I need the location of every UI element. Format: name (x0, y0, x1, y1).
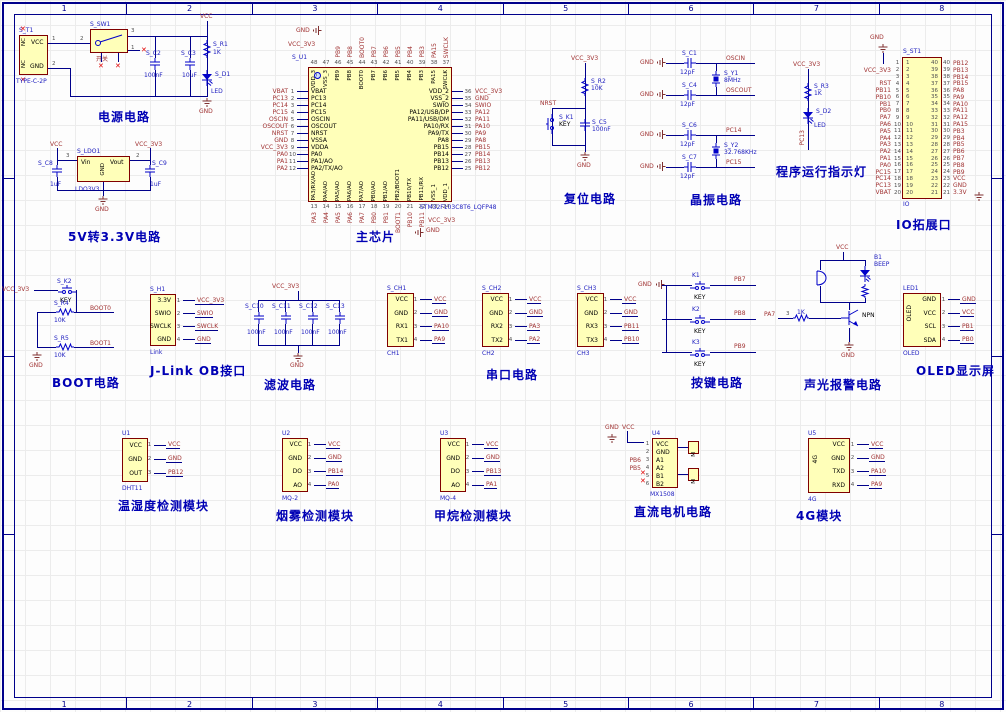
wire (183, 339, 195, 340)
net-label[interactable]: PA10 (869, 468, 886, 476)
wire (472, 444, 484, 445)
power-port-gnd[interactable]: GND (577, 162, 591, 169)
pin-number: 43 (368, 60, 380, 66)
net-label[interactable]: GND (640, 91, 654, 98)
wire (678, 474, 688, 475)
pin-number: 20 (893, 190, 902, 196)
wire (420, 313, 432, 314)
net-label[interactable]: GND (166, 455, 182, 463)
net-label[interactable]: GND (527, 309, 543, 317)
pin-number: 17 (356, 204, 368, 210)
npn-transistor-icon[interactable] (841, 308, 861, 328)
section-title[interactable]: 5V转3.3V电路 (68, 228, 161, 245)
pin-number: 3 (288, 103, 297, 109)
pin-number: 23 (929, 176, 942, 182)
gnd-icon[interactable] (878, 44, 888, 53)
resistor-icon[interactable] (793, 314, 809, 322)
capacitor-icon[interactable] (580, 119, 590, 131)
wire (716, 159, 717, 167)
net-label[interactable]: PA6 (344, 212, 356, 244)
designator: S_Y1 (724, 70, 738, 77)
gnd-icon[interactable] (414, 228, 424, 237)
net-label[interactable]: PA10 (432, 323, 449, 331)
key-items: K1 KEY PB7 K2 KEY PB8 K3 KEY (662, 272, 782, 373)
net-label[interactable]: VCC (166, 441, 180, 449)
value: KEY (694, 361, 705, 368)
pin-name: DO (441, 468, 463, 475)
net-label[interactable]: PB0 (960, 336, 974, 344)
net-label[interactable]: VCC (622, 296, 636, 304)
power-port-vcc[interactable]: VCC (622, 424, 634, 431)
net-label[interactable]: SWCLK (195, 323, 218, 331)
net-label[interactable]: PB4 (404, 46, 416, 58)
capacitor[interactable]: S_C11 100nF (272, 300, 299, 345)
pin-number: 3 (131, 28, 135, 34)
net-label[interactable]: GND (622, 309, 638, 317)
pin-number: 27 (942, 149, 951, 155)
pin-number: 34 (942, 101, 951, 107)
key-circuit[interactable]: K3 KEY PB9 (662, 339, 782, 373)
net-label[interactable]: GND (960, 296, 976, 304)
net-label[interactable]: VCC (960, 309, 974, 317)
gnd-icon[interactable] (607, 434, 617, 443)
pin-number: 31 (463, 124, 473, 130)
gnd-icon[interactable] (656, 58, 666, 67)
wire (314, 444, 326, 445)
pin-number: 18 (902, 176, 915, 182)
pin-number: 18 (368, 204, 380, 210)
wire (452, 105, 463, 106)
net-label[interactable]: PA1 (484, 481, 497, 489)
net-label[interactable]: SWIO (473, 102, 491, 109)
net-label[interactable]: PA0 (326, 481, 339, 489)
net-label[interactable]: PB13 (473, 158, 490, 165)
net-label[interactable]: PB9 (332, 46, 344, 58)
wire (190, 70, 191, 96)
capacitor-icon[interactable] (684, 162, 696, 172)
value: 10K (54, 352, 66, 359)
wire (452, 140, 463, 141)
pin-number: 5 (893, 88, 902, 94)
capacitor[interactable]: S_C13 100nF (326, 300, 353, 345)
section-title[interactable]: 滤波电路 (264, 376, 316, 393)
net-label[interactable]: VCC (484, 441, 498, 449)
net-label[interactable]: PA10 (473, 123, 490, 130)
section-title[interactable]: IO拓展口 (896, 216, 952, 233)
key-button-icon[interactable] (58, 285, 76, 295)
designator: K3 (692, 339, 700, 346)
section-title[interactable]: 程序运行指示灯 (776, 163, 867, 180)
gnd-icon[interactable] (293, 353, 303, 362)
net-label[interactable]: VCC_3V3 (288, 41, 315, 48)
section-title[interactable]: 4G模块 (796, 507, 842, 524)
net-label[interactable]: PB5 (392, 46, 404, 58)
power-port-gnd[interactable]: GND (638, 281, 652, 288)
wire (74, 312, 114, 313)
net-label[interactable]: SWIO (195, 310, 213, 318)
power-port-vcc[interactable]: VCC (200, 13, 212, 20)
module-rows: VCC 1 VCC GND 2 GND DO 3 PB13 AO 4 PA1 (441, 438, 501, 492)
wire (472, 485, 484, 486)
mcu-top-numbers: 484746454443424140393837 (308, 60, 452, 66)
net-label[interactable]: GND (640, 163, 654, 170)
designator: S_C10 (245, 303, 264, 310)
power-port-gnd[interactable]: GND (95, 206, 109, 213)
pin-name: RXD (810, 482, 848, 489)
wire (857, 458, 869, 459)
power-port-gnd[interactable]: GND (870, 34, 884, 41)
power-port-vcc[interactable]: VCC (836, 244, 848, 251)
net-label[interactable]: PC14 (726, 127, 741, 134)
net-label[interactable]: GND (254, 137, 288, 144)
pin-name: Vout (110, 159, 123, 166)
capacitor[interactable]: S_C12 100nF (299, 300, 326, 345)
pin-number: 4 (902, 81, 915, 87)
pin-number: 24 (929, 169, 942, 175)
pin-number: 33 (942, 108, 951, 114)
resistor-icon[interactable] (581, 78, 589, 94)
net-label[interactable]: VCC (432, 296, 446, 304)
key-button-icon[interactable] (546, 114, 558, 134)
net-label[interactable]: PC13 (254, 95, 288, 102)
pin-number: 5 (902, 88, 915, 94)
pin-name: PA3/RX/AO (308, 160, 320, 201)
power-port-gnd[interactable]: GND (199, 108, 213, 115)
power-port-gnd[interactable]: GND (841, 352, 855, 359)
net-label[interactable]: PA9 (869, 481, 882, 489)
net-label[interactable]: PB14 (326, 468, 343, 476)
net-label[interactable]: OSCOUT (726, 87, 752, 94)
pin-name: PA9/TX (428, 130, 449, 137)
capacitor-icon[interactable] (684, 90, 696, 100)
pin-number: 20 (902, 190, 915, 196)
gnd-icon[interactable] (656, 162, 666, 171)
pin-number: 8 (288, 138, 297, 144)
net-label[interactable]: PA7 (764, 311, 775, 318)
wire (297, 168, 308, 169)
net-label[interactable]: VCC (869, 441, 883, 449)
wire (696, 135, 755, 136)
pin-number: 28 (463, 145, 473, 151)
pin-name: TX3 (578, 337, 601, 344)
gnd-icon[interactable] (32, 352, 42, 361)
net-label[interactable]: PB7 (368, 46, 380, 58)
net-label[interactable]: GND (484, 454, 500, 462)
pin-number: 8 (893, 108, 902, 114)
pin-number: 2 (174, 311, 183, 317)
gnd-icon[interactable] (312, 26, 322, 35)
pin-number: 27 (463, 152, 473, 158)
pin-name: PB1/AO (380, 160, 392, 201)
net-label[interactable]: OSCIN (726, 55, 745, 62)
pin-number: 2 (463, 455, 472, 461)
capacitor-icon[interactable] (52, 165, 62, 177)
wire (585, 63, 586, 152)
section-title[interactable]: 直流电机电路 (634, 503, 712, 520)
gnd-icon[interactable] (580, 152, 590, 161)
value: 12pF (680, 141, 695, 148)
pin-name: GND (283, 455, 305, 462)
pin-number: 9 (288, 145, 297, 151)
capacitor-icon[interactable] (684, 58, 696, 68)
wire (610, 313, 622, 314)
led-icon[interactable] (802, 108, 814, 124)
buzzer-icon[interactable] (812, 270, 828, 286)
section-title[interactable]: 主芯片 (356, 228, 395, 245)
designator: S_C3 (181, 50, 196, 57)
net-label[interactable]: PA11 (473, 116, 490, 123)
section-title[interactable]: 甲烷检测模块 (434, 507, 512, 524)
pin-number: 3 (848, 469, 857, 475)
key-circuit[interactable]: K1 KEY PB7 (662, 272, 782, 306)
net-label[interactable]: VCC (527, 296, 541, 304)
pin-number: 25 (942, 162, 951, 168)
section-title[interactable]: 复位电路 (564, 190, 616, 207)
net-label[interactable]: GND (326, 454, 342, 462)
net-label[interactable]: PC13 (799, 130, 806, 145)
section-title[interactable]: J-Link OB接口 (150, 362, 246, 379)
designator: K2 (692, 306, 700, 313)
wire (452, 154, 463, 155)
section-title[interactable]: 按键电路 (691, 374, 743, 391)
section-title[interactable]: 温湿度检测模块 (118, 497, 209, 514)
wire (710, 352, 756, 353)
pin-number: 34 (929, 101, 942, 107)
led-icon[interactable] (859, 266, 871, 282)
net-label[interactable]: PA3 (308, 212, 320, 244)
net-label[interactable]: GND (195, 336, 211, 344)
column-number: 7 (754, 2, 879, 14)
pin-number: 37 (440, 60, 452, 66)
value: LED (814, 122, 826, 129)
resistor-icon[interactable] (203, 40, 211, 56)
wire (57, 177, 58, 190)
net-label[interactable]: PB15 (473, 144, 490, 151)
net-label[interactable]: PA5 (332, 212, 344, 244)
net-label[interactable]: PB3 (416, 46, 428, 58)
net-label[interactable]: PA12 (473, 109, 490, 116)
net-label[interactable]: BOOT0 (356, 37, 368, 58)
capacitor[interactable]: S_C10 100nF (245, 300, 272, 345)
net-label[interactable]: PA15 (428, 43, 440, 58)
net-label[interactable]: GND (640, 131, 654, 138)
net-label[interactable]: GND (640, 59, 654, 66)
net-label[interactable]: PB1 (960, 323, 974, 331)
net-label[interactable]: VCC_3V3 (473, 88, 502, 95)
capacitor-icon[interactable] (150, 58, 160, 70)
pin-number: 8 (902, 108, 915, 114)
pin-number: 19 (380, 204, 392, 210)
switch-icon (92, 31, 126, 51)
net-label[interactable]: PB12 (166, 469, 183, 477)
resistor-icon[interactable] (56, 343, 74, 351)
net-label[interactable]: PC15 (254, 109, 288, 116)
resistor-icon[interactable] (804, 83, 812, 99)
section-title[interactable]: 串口电路 (486, 366, 538, 383)
net-label[interactable]: GND (869, 454, 885, 462)
sheet-tick (992, 356, 1004, 357)
pin-name: PA7/AO (356, 160, 368, 201)
gnd-icon[interactable] (98, 196, 108, 205)
pin-number: 16 (893, 162, 902, 168)
section-title[interactable]: 电源电路 (98, 108, 150, 125)
pin-name: B2 (652, 481, 664, 488)
pin-number: 19 (902, 183, 915, 189)
gnd-icon[interactable] (656, 90, 666, 99)
serial-rows: VCC 1 VCC GND 2 GND RX1 3 PA10 TX1 4 PA9 (388, 293, 449, 347)
resistor-icon[interactable] (861, 284, 869, 298)
pin-number: 32 (942, 115, 951, 121)
wire (662, 352, 692, 353)
wire (297, 105, 308, 106)
net-label[interactable]: PB9 (734, 343, 746, 350)
net-label[interactable]: PB11 (622, 323, 639, 331)
net-label[interactable]: PA3 (527, 323, 540, 331)
power-port-gnd[interactable]: GND (29, 362, 43, 369)
pin-name: PB10/TX (404, 160, 416, 201)
pin-number: 7 (893, 101, 902, 107)
capacitor-icon[interactable] (684, 130, 696, 140)
pin-number: 37 (942, 81, 951, 87)
motor-connector-box[interactable]: M (688, 441, 699, 454)
net-label[interactable]: PB6 (380, 46, 392, 58)
pin-number: 29 (942, 135, 951, 141)
net-label[interactable]: VCC (326, 441, 340, 449)
net-label[interactable]: PA9 (432, 336, 445, 344)
net-label[interactable]: NRST (254, 130, 288, 137)
value: TYPE-C-2P (16, 78, 47, 85)
column-number: 5 (504, 2, 629, 14)
net-label[interactable]: PA9 (473, 130, 486, 137)
section-title[interactable]: BOOT电路 (52, 374, 120, 391)
section-title[interactable]: 烟雾检测模块 (276, 507, 354, 524)
net-label[interactable]: PA4 (320, 212, 332, 244)
power-port-gnd[interactable]: GND (605, 424, 619, 431)
section-title[interactable]: 晶振电路 (690, 191, 742, 208)
net-label[interactable]: VBAT (254, 88, 288, 95)
wire (150, 148, 151, 165)
designator: S_R4 (54, 300, 69, 307)
net-label[interactable]: OSCOUT (254, 123, 288, 130)
wire (70, 96, 208, 97)
pin-name: PA10/RX (424, 123, 449, 130)
net-label[interactable]: VCC_3V3 (428, 217, 455, 224)
pin-name: GND (30, 63, 44, 70)
gnd-icon[interactable] (844, 342, 854, 351)
pin-number: 12 (893, 135, 902, 141)
pin-name: VCC (905, 310, 939, 317)
pin-number: 17 (893, 169, 902, 175)
wire (154, 459, 166, 460)
pin-number: 39 (942, 67, 951, 73)
net-label[interactable]: PB6 (617, 457, 643, 464)
net-label[interactable]: PB7 (734, 276, 746, 283)
value: MX1508 (650, 491, 675, 498)
wire (420, 299, 432, 300)
net-label[interactable]: PC15 (726, 159, 741, 166)
pin-number: 1 (52, 36, 56, 42)
crystal-icon[interactable] (710, 71, 722, 87)
capacitor-icon (281, 312, 291, 324)
section-title[interactable]: 声光报警电路 (804, 376, 882, 393)
wire (154, 473, 166, 474)
net-label[interactable]: PA8 (473, 137, 486, 144)
power-port-gnd[interactable]: GND (290, 362, 304, 369)
wire (297, 91, 308, 92)
designator: S_SW1 (90, 21, 110, 28)
net-label[interactable]: PA1 (254, 158, 288, 165)
capacitor-icon[interactable] (185, 58, 195, 70)
io-rows: 1 1 40 40 PB12 VCC_3V3 2 2 39 39 PB13 3 … (857, 60, 981, 196)
resistor-icon[interactable] (56, 308, 74, 316)
pin-number: 18 (893, 176, 902, 182)
net-label[interactable]: PB10 (622, 336, 639, 344)
pin-number: 2 (411, 310, 420, 316)
net-label[interactable]: GND (473, 95, 489, 102)
net-label[interactable]: PA2 (527, 336, 540, 344)
wire (128, 50, 140, 51)
power-port-vcc33[interactable]: VCC_3V3 (793, 61, 820, 68)
net-label[interactable]: GND (296, 27, 310, 34)
net-label[interactable]: PB12 (473, 165, 490, 172)
net-label[interactable]: PA0 (254, 151, 288, 158)
pin-name: VBAT (311, 88, 327, 95)
power-port-vcc33[interactable]: VCC_3V3 (272, 283, 299, 290)
net-label[interactable]: PA2 (254, 165, 288, 172)
net-label[interactable]: GND (426, 227, 440, 234)
power-port-vcc33[interactable]: VCC_3V3 (135, 141, 162, 148)
net-label[interactable]: PB8 (344, 46, 356, 58)
wire (610, 299, 622, 300)
net-label[interactable]: PB8 (734, 310, 746, 317)
net-label[interactable]: BOOT0 (90, 305, 111, 312)
power-port-vcc[interactable]: VCC (50, 141, 62, 148)
pin-name: OSCOUT (311, 123, 337, 130)
pin-number: 11 (902, 128, 915, 134)
pin-number: 39 (929, 67, 942, 73)
net-label[interactable]: GND (432, 309, 448, 317)
power-port-vcc33[interactable]: VCC_3V3 (571, 55, 598, 62)
net-label[interactable]: OSCIN (254, 116, 288, 123)
gnd-icon[interactable] (656, 130, 666, 139)
wire (298, 345, 299, 353)
wire (57, 160, 77, 161)
motor-connector-box[interactable]: M (688, 468, 699, 481)
designator: S_C4 (682, 82, 697, 89)
net-label[interactable]: PC14 (254, 102, 288, 109)
gnd-icon[interactable] (974, 192, 984, 201)
net-label[interactable]: SWCLK (440, 37, 452, 58)
net-label[interactable]: PB13 (484, 468, 501, 476)
pin-name: VDDA (311, 144, 328, 151)
mcu-bottom-pin-names: PA3/RX/AOPA4/AOPA5/AOPA6/AOPA7/AOPB0/AOP… (308, 160, 452, 201)
value: 12pF (680, 173, 695, 180)
net-label[interactable]: PB14 (473, 151, 490, 158)
led-icon[interactable] (201, 70, 213, 86)
gnd-icon[interactable] (202, 98, 212, 107)
net-label[interactable]: NRST (540, 100, 556, 107)
net-label[interactable]: VCC_3V3 (254, 144, 288, 151)
section-title[interactable]: OLED显示屏 (916, 362, 995, 379)
value: 100nF (301, 329, 320, 336)
pin-number: 38 (929, 74, 942, 80)
net-label[interactable]: BOOT1 (90, 340, 111, 347)
crystal-icon[interactable] (710, 143, 722, 159)
net-label[interactable]: VCC_3V3 (195, 297, 224, 305)
pin-number: 3 (786, 311, 790, 317)
net-label[interactable]: VBAT (857, 189, 893, 196)
power-port-vcc33[interactable]: VCC_3V3 (2, 286, 29, 293)
